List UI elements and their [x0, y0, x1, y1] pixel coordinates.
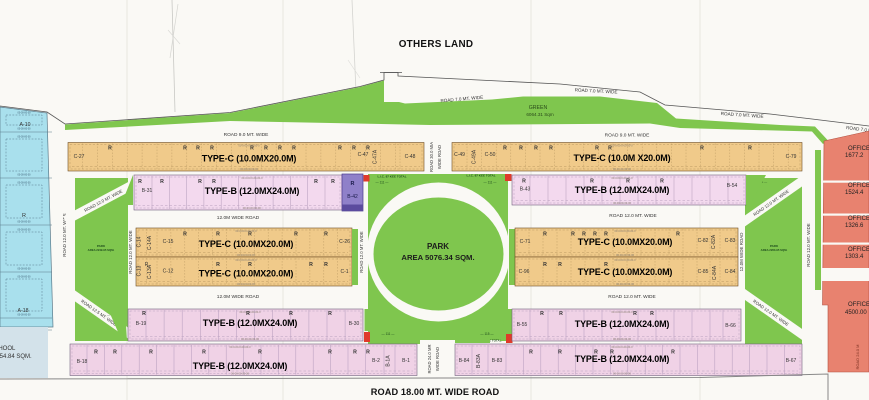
svg-text:C-13: C-13: [137, 265, 143, 276]
svg-text:R: R: [519, 146, 523, 152]
svg-text:B-1A: B-1A: [386, 355, 392, 367]
svg-text:C-82A: C-82A: [711, 234, 717, 249]
svg-text:R: R: [529, 350, 533, 356]
svg-text:TYPE-C (10.0MX20.0M): TYPE-C (10.0MX20.0M): [578, 267, 673, 277]
svg-text:12.0M WIDE ROAD: 12.0M WIDE ROAD: [739, 233, 744, 272]
svg-text:SCHOOL: SCHOOL: [0, 346, 16, 352]
svg-text:00-00-00-00-00: 00-00-00-00-00: [243, 206, 261, 210]
svg-text:R: R: [278, 146, 282, 152]
svg-text:R: R: [590, 179, 594, 185]
svg-text:C-79: C-79: [786, 154, 797, 160]
svg-text:R: R: [366, 146, 370, 152]
svg-text:00-00-00-00-00: 00-00-00-00-00: [613, 201, 631, 205]
svg-text:B-43: B-43: [520, 187, 531, 193]
svg-text:R: R: [633, 311, 637, 317]
svg-text:ROAD 12.0 MT. WIDE: ROAD 12.0 MT. WIDE: [806, 223, 811, 266]
svg-text:OFFICE: OFFICE: [848, 183, 869, 189]
svg-text:R: R: [292, 146, 296, 152]
svg-text:R: R: [549, 146, 553, 152]
svg-text:00-0-00-0-00-00-0: 00-0-00-0-00-00-0: [229, 345, 251, 349]
svg-text:L.I.C. 87 KEE TOTAL: L.I.C. 87 KEE TOTAL: [466, 174, 495, 178]
svg-text:00-00-00-00: 00-00-00-00: [17, 229, 31, 232]
svg-text:C-14A: C-14A: [147, 235, 153, 250]
svg-text:C-50: C-50: [485, 152, 496, 158]
svg-text:R: R: [145, 262, 149, 268]
svg-text:R: R: [671, 350, 675, 356]
svg-text:R: R: [202, 350, 206, 356]
svg-text:— 111 —: — 111 —: [484, 181, 498, 185]
svg-text:B-18: B-18: [77, 359, 88, 365]
svg-text:C-82: C-82: [698, 238, 709, 244]
svg-text:— 111 —: — 111 —: [376, 181, 390, 185]
svg-text:C-84: C-84: [725, 269, 736, 275]
svg-text:00-0-00-0-00-00-0: 00-0-00-0-00-00-0: [235, 258, 257, 262]
svg-text:OFFICE: OFFICE: [848, 216, 869, 222]
svg-text:R: R: [22, 213, 26, 219]
svg-text:AREA 2249.95 SQM.: AREA 2249.95 SQM.: [88, 248, 115, 252]
svg-text:R: R: [700, 146, 704, 152]
svg-text:R: R: [608, 146, 612, 152]
svg-text:B-84: B-84: [459, 358, 470, 364]
svg-text:A-10: A-10: [20, 122, 31, 128]
svg-text:C-14: C-14: [137, 236, 143, 247]
svg-text:B-83: B-83: [492, 358, 503, 364]
svg-text:00-00-00-00-00: 00-00-00-00-00: [237, 253, 255, 257]
svg-text:R: R: [309, 262, 313, 268]
svg-text:C-96: C-96: [519, 269, 530, 275]
svg-text:C-1: C-1: [340, 269, 348, 275]
svg-text:R: R: [246, 311, 250, 317]
svg-text:1326.6: 1326.6: [845, 223, 864, 229]
svg-text:R: R: [216, 232, 220, 238]
svg-text:R: R: [94, 350, 98, 356]
svg-text:R: R: [543, 232, 547, 238]
svg-text:ROAD 24.0 MR: ROAD 24.0 MR: [427, 344, 432, 373]
svg-text:00-0-00-0-00-00-0: 00-0-00-0-00-00-0: [611, 144, 633, 148]
svg-text:B-54: B-54: [727, 183, 738, 189]
svg-text:ROAD 12.0 MT. WIDE: ROAD 12.0 MT. WIDE: [609, 213, 656, 219]
svg-text:R: R: [149, 350, 153, 356]
svg-text:WIDE ROAD: WIDE ROAD: [435, 347, 440, 371]
svg-text:R: R: [650, 311, 654, 317]
svg-text:C-15: C-15: [163, 239, 174, 245]
svg-text:R: R: [534, 146, 538, 152]
svg-text:ROAD 9.0 MT. WIDE: ROAD 9.0 MT. WIDE: [605, 133, 650, 139]
svg-text:R: R: [196, 146, 200, 152]
svg-text:00-00-00-00-00: 00-00-00-00-00: [613, 371, 631, 375]
svg-text:00-00-00-00-00: 00-00-00-00-00: [613, 167, 631, 171]
svg-text:00-0-00-0-00-00-0: 00-0-00-0-00-00-0: [614, 229, 636, 233]
svg-text:R: R: [198, 179, 202, 185]
svg-text:00-0-00-0-00-00-0: 00-0-00-0-00-00-0: [241, 176, 263, 180]
svg-text:R: R: [183, 232, 187, 238]
svg-text:TYPE-B (12.0MX24.0M): TYPE-B (12.0MX24.0M): [575, 354, 670, 364]
svg-text:R: R: [571, 232, 575, 238]
svg-text:R: R: [138, 179, 142, 185]
svg-text:R: R: [353, 350, 357, 356]
svg-text:R: R: [210, 146, 214, 152]
svg-text:R: R: [352, 146, 356, 152]
svg-text:— 111 —: — 111 —: [382, 332, 396, 336]
svg-text:B-42: B-42: [347, 194, 358, 200]
svg-text:L.I.C. 87 KEE TOTAL: L.I.C. 87 KEE TOTAL: [377, 175, 406, 179]
svg-text:R: R: [324, 232, 328, 238]
svg-text:1524.4: 1524.4: [845, 190, 864, 196]
svg-text:OFFICE: OFFICE: [848, 247, 869, 253]
svg-text:B-66: B-66: [725, 323, 736, 329]
svg-text:C-27: C-27: [74, 154, 85, 160]
svg-text:6064.31 Sqm: 6064.31 Sqm: [526, 112, 554, 117]
svg-text:C-84A: C-84A: [712, 265, 718, 280]
svg-text:ROAD 18.00 MT. WIDE ROAD: ROAD 18.00 MT. WIDE ROAD: [371, 387, 500, 397]
svg-text:1303.4: 1303.4: [845, 254, 864, 260]
svg-text:R: R: [314, 179, 318, 185]
svg-text:R: R: [660, 179, 664, 185]
svg-text:B-1: B-1: [402, 358, 410, 364]
svg-text:00-00-00-00: 00-00-00-00: [17, 221, 31, 224]
svg-text:B-30: B-30: [349, 321, 360, 327]
svg-text:1677.2: 1677.2: [845, 153, 864, 159]
svg-text:R: R: [183, 146, 187, 152]
svg-text:R: R: [216, 262, 220, 268]
svg-text:R: R: [558, 262, 562, 268]
svg-text:00-00-00-00: 00-00-00-00: [17, 182, 31, 185]
svg-text:R: R: [248, 232, 252, 238]
svg-text:ROAD 12.0 MT. WIDE: ROAD 12.0 MT. WIDE: [359, 231, 364, 273]
svg-text:4500.00: 4500.00: [845, 310, 867, 316]
svg-text:B-2: B-2: [372, 358, 380, 364]
svg-text:12.0M WIDE ROAD: 12.0M WIDE ROAD: [217, 215, 260, 221]
svg-text:AREA 2263.95 SQM.: AREA 2263.95 SQM.: [761, 248, 788, 252]
svg-text:OTHERS LAND: OTHERS LAND: [399, 39, 474, 50]
svg-text:R: R: [626, 179, 630, 185]
svg-text:00-00-00-00-00: 00-00-00-00-00: [241, 337, 259, 341]
svg-text:R: R: [160, 179, 164, 185]
svg-text:R: R: [212, 179, 216, 185]
svg-text:AREA 5076.34 SQM.: AREA 5076.34 SQM.: [401, 253, 474, 262]
svg-text:TYPE-B (12.0MX24.0M): TYPE-B (12.0MX24.0M): [205, 186, 300, 196]
svg-text:R: R: [264, 146, 268, 152]
svg-text:C-49A: C-49A: [472, 149, 478, 164]
svg-text:00-0-00-0-00-00-0: 00-0-00-0-00-00-0: [611, 345, 633, 349]
svg-text:TYPE-C (10.0MX20.0M): TYPE-C (10.0MX20.0M): [199, 239, 294, 249]
svg-text:R: R: [142, 311, 146, 317]
svg-text:00-00-00-00-00: 00-00-00-00-00: [240, 167, 258, 171]
svg-text:TYPE-B (12.0MX24.0M): TYPE-B (12.0MX24.0M): [193, 361, 288, 371]
svg-text:C-26: C-26: [339, 239, 350, 245]
svg-text:C-85: C-85: [698, 269, 709, 275]
svg-text:R: R: [676, 232, 680, 238]
svg-text:00-00-00-00: 00-00-00-00: [17, 174, 31, 177]
svg-text:R: R: [540, 311, 544, 317]
svg-text:R: R: [324, 262, 328, 268]
svg-text:00-00-00-00-00: 00-00-00-00-00: [616, 282, 634, 286]
svg-text:TYPE-B (12.0MX24.0M): TYPE-B (12.0MX24.0M): [575, 319, 670, 329]
svg-text:ROAD 12.0 MT. WIDE: ROAD 12.0 MT. WIDE: [608, 294, 655, 300]
svg-text:B-31: B-31: [142, 188, 153, 194]
svg-text:R: R: [248, 262, 252, 268]
svg-text:R: R: [543, 262, 547, 268]
svg-text:R: R: [289, 311, 293, 317]
svg-text:ROAD 9.0 MT. WIDE: ROAD 9.0 MT. WIDE: [224, 132, 269, 138]
svg-text:TYPE-C (10.0M X20.0M): TYPE-C (10.0M X20.0M): [574, 153, 671, 163]
svg-text:R: R: [258, 350, 262, 356]
svg-text:00-00-00-00-00: 00-00-00-00-00: [613, 337, 631, 341]
svg-text:B-19: B-19: [136, 321, 147, 327]
svg-text:B-55: B-55: [517, 322, 528, 328]
svg-text:R: R: [328, 311, 332, 317]
svg-text:R: R: [113, 350, 117, 356]
svg-text:C-71: C-71: [520, 239, 531, 245]
svg-text:00-0-00-0-00-00-0: 00-0-00-0-00-00-0: [611, 310, 633, 314]
svg-text:R: R: [748, 146, 752, 152]
svg-text:R: R: [522, 179, 526, 185]
svg-text:00-00-00-00-00: 00-00-00-00-00: [616, 253, 634, 257]
svg-text:C-47: C-47: [358, 152, 369, 158]
svg-text:ROAD 30.0 MIA: ROAD 30.0 MIA: [429, 142, 434, 172]
svg-text:R: R: [503, 146, 507, 152]
svg-text:R: R: [338, 146, 342, 152]
svg-text:2754.84 SQM.: 2754.84 SQM.: [0, 354, 32, 360]
svg-text:R: R: [558, 350, 562, 356]
svg-text:00-00-00-00: 00-00-00-00: [17, 136, 31, 139]
svg-text:00-00-00-00-00: 00-00-00-00-00: [231, 371, 249, 375]
svg-text:12.0M WIDE ROAD: 12.0M WIDE ROAD: [217, 294, 260, 300]
svg-text:00-0-00-0-00-00-0: 00-0-00-0-00-00-0: [614, 258, 636, 262]
svg-text:TYPE-B (12.0MX24.0M): TYPE-B (12.0MX24.0M): [203, 318, 298, 328]
svg-text:R: R: [294, 232, 298, 238]
svg-text:R: R: [366, 350, 370, 356]
svg-text:R: R: [108, 146, 112, 152]
svg-text:C-12: C-12: [163, 269, 174, 275]
svg-text:B-67: B-67: [786, 358, 797, 364]
svg-text:R: R: [559, 311, 563, 317]
svg-text:R: R: [328, 350, 332, 356]
svg-text:00-00-00-00: 00-00-00-00: [17, 268, 31, 271]
svg-text:TYPE-B (12.0MX24.0M): TYPE-B (12.0MX24.0M): [575, 185, 670, 195]
svg-text:00-00-00-00: 00-00-00-00: [17, 112, 31, 115]
svg-text:TYPE-C (10.0MX20.0M): TYPE-C (10.0MX20.0M): [202, 154, 297, 164]
svg-text:00-00-00-00-00: 00-00-00-00-00: [237, 282, 255, 286]
svg-text:TYPE-C (10.0MX20.0M): TYPE-C (10.0MX20.0M): [578, 237, 673, 247]
svg-text:TYPE-C (10.0MX20.0M): TYPE-C (10.0MX20.0M): [199, 269, 294, 279]
svg-text:R: R: [331, 179, 335, 185]
svg-text:PARK: PARK: [427, 242, 449, 251]
svg-text:ROAD 24.0 M: ROAD 24.0 M: [855, 345, 860, 370]
svg-text:00-0-00-0-00-00-0: 00-0-00-0-00-00-0: [235, 229, 257, 233]
svg-text:GREEN: GREEN: [529, 105, 548, 111]
svg-text:R: R: [595, 146, 599, 152]
svg-text:R: R: [351, 181, 355, 187]
svg-text:00-0-00-0-00-00-0: 00-0-00-0-00-00-0: [239, 310, 261, 314]
svg-text:R: R: [250, 146, 254, 152]
svg-text:WIDE ROAD: WIDE ROAD: [437, 145, 442, 169]
svg-text:C-47A: C-47A: [373, 149, 379, 164]
svg-text:C-83: C-83: [725, 238, 736, 244]
svg-text:A-18: A-18: [18, 308, 29, 314]
svg-text:ROAD 12.0 MT. WIDE: ROAD 12.0 MT. WIDE: [128, 230, 133, 273]
svg-text:— 115 —: — 115 —: [480, 332, 494, 336]
svg-text:00-00-00-00: 00-00-00-00: [17, 276, 31, 279]
svg-text:C-48: C-48: [405, 154, 416, 160]
svg-text:OFFICE: OFFICE: [848, 302, 869, 308]
svg-text:C-49: C-49: [454, 152, 465, 158]
svg-text:OFFICE: OFFICE: [848, 146, 869, 152]
svg-text:B-83A: B-83A: [476, 353, 482, 368]
